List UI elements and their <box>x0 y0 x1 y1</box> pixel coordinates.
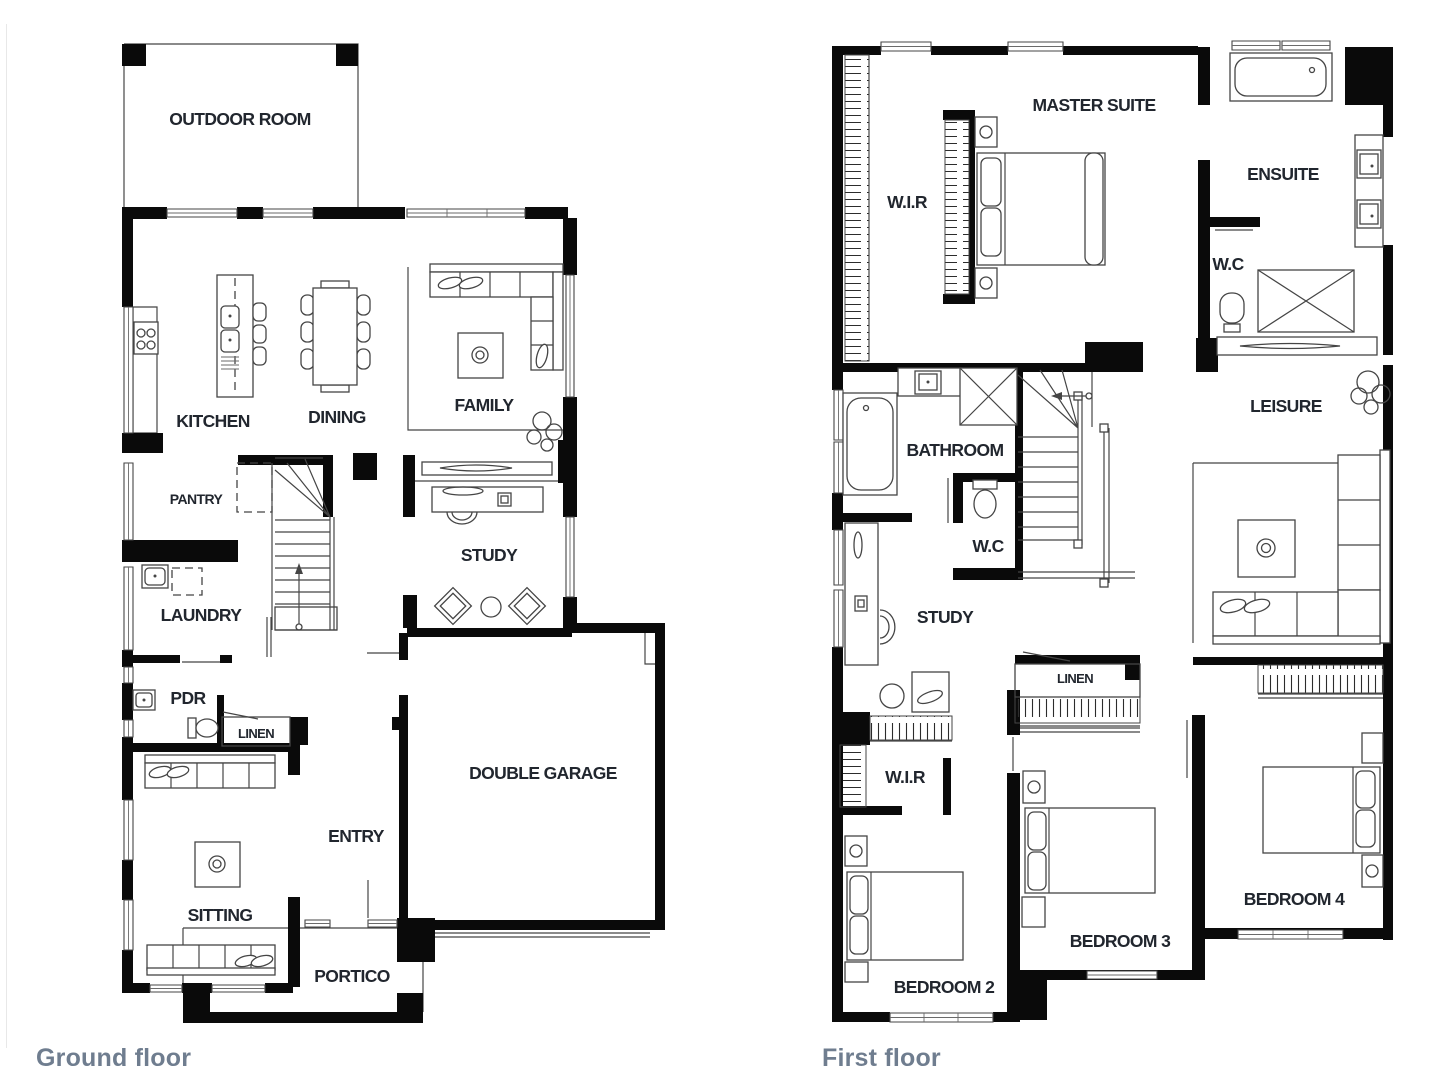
room-label-entry: ENTRY <box>328 826 385 846</box>
room-label-ground-linen: LINEN <box>238 726 274 741</box>
cooktop-icon <box>134 322 158 354</box>
floorplan-page: OUTDOOR ROOM KITCHEN DINING FAMILY PANTR… <box>0 0 1444 1078</box>
dining-table <box>301 281 370 392</box>
bedroom4-furniture <box>1263 733 1383 887</box>
room-label-double-garage: DOUBLE GARAGE <box>469 763 617 783</box>
shower-icon <box>1258 270 1354 332</box>
room-label-pantry: PANTRY <box>170 491 224 507</box>
room-label-wir-master: W.I.R <box>887 192 928 212</box>
first-floor-caption: First floor <box>822 1044 941 1073</box>
first-floor-plan: MASTER SUITE W.I.R ENSUITE W.C BATHROOM … <box>832 41 1393 1022</box>
wc-toilet-icon <box>973 480 997 518</box>
room-label-laundry: LAUNDRY <box>161 605 243 625</box>
bathroom-shower-icon <box>960 368 1017 425</box>
bedroom4-robe <box>1258 665 1383 693</box>
wir2-robe-vertical <box>840 745 866 807</box>
room-label-ground-study: STUDY <box>461 545 518 565</box>
pantry-shelf <box>237 463 272 512</box>
bedroom3-furniture <box>1022 771 1155 927</box>
wir2-robe-horizontal <box>870 716 952 740</box>
ground-study-chairs <box>435 588 546 625</box>
bedroom2-furniture <box>845 836 963 982</box>
ensuite-vanity <box>1355 135 1383 247</box>
room-label-leisure: LEISURE <box>1250 396 1322 416</box>
room-label-wc-ensuite: W.C <box>1212 254 1244 274</box>
kitchen-fixtures <box>134 275 266 397</box>
ground-study-desk <box>432 487 543 524</box>
master-bed <box>977 153 1105 265</box>
family-coffee-table <box>458 333 503 378</box>
bathroom-vanity <box>898 368 962 396</box>
ground-floor-plan: OUTDOOR ROOM KITCHEN DINING FAMILY PANTR… <box>122 44 665 1023</box>
kitchen-island <box>217 275 253 397</box>
tv-cabinet <box>422 462 552 475</box>
ensuite-ledge <box>1217 337 1377 355</box>
linen-rail <box>1015 697 1140 723</box>
room-label-portico: PORTICO <box>314 966 390 986</box>
bathtub-icon <box>1230 53 1332 101</box>
room-label-bedroom-3: BEDROOM 3 <box>1070 931 1171 951</box>
room-label-wir-bed2: W.I.R <box>885 767 926 787</box>
room-label-family: FAMILY <box>455 395 515 415</box>
room-label-dining: DINING <box>308 407 366 427</box>
room-label-master-suite: MASTER SUITE <box>1032 95 1155 115</box>
room-label-first-study: STUDY <box>917 607 974 627</box>
room-label-outdoor-room: OUTDOOR ROOM <box>169 109 311 129</box>
bathroom-tub-icon <box>843 393 897 495</box>
laundry-fixtures <box>142 565 202 595</box>
room-label-sitting: SITTING <box>188 905 253 925</box>
ground-floor-caption: Ground floor <box>36 1044 191 1073</box>
room-label-bedroom-2: BEDROOM 2 <box>894 977 995 997</box>
room-label-bathroom: BATHROOM <box>907 440 1004 460</box>
room-label-ensuite: ENSUITE <box>1247 164 1319 184</box>
master-wir-robe <box>845 55 869 361</box>
kitchen-stools <box>253 303 266 365</box>
first-study-desk <box>845 523 895 665</box>
first-staircase <box>1018 370 1135 587</box>
family-plant-icon <box>527 412 562 451</box>
first-study-table <box>880 672 949 712</box>
room-label-kitchen: KITCHEN <box>176 411 250 431</box>
room-label-first-linen: LINEN <box>1057 671 1093 686</box>
room-label-bedroom-4: BEDROOM 4 <box>1244 889 1345 909</box>
leisure-coffee-table <box>1238 520 1295 577</box>
toilet-icon <box>188 718 196 738</box>
floor-plans-canvas: OUTDOOR ROOM KITCHEN DINING FAMILY PANTR… <box>0 0 1444 1078</box>
bedhead-robe <box>945 120 969 294</box>
sitting-coffee-table <box>195 842 240 887</box>
ensuite-toilet-icon <box>1220 293 1244 332</box>
room-label-pdr: PDR <box>170 688 206 708</box>
room-label-wc-hall: W.C <box>972 536 1004 556</box>
